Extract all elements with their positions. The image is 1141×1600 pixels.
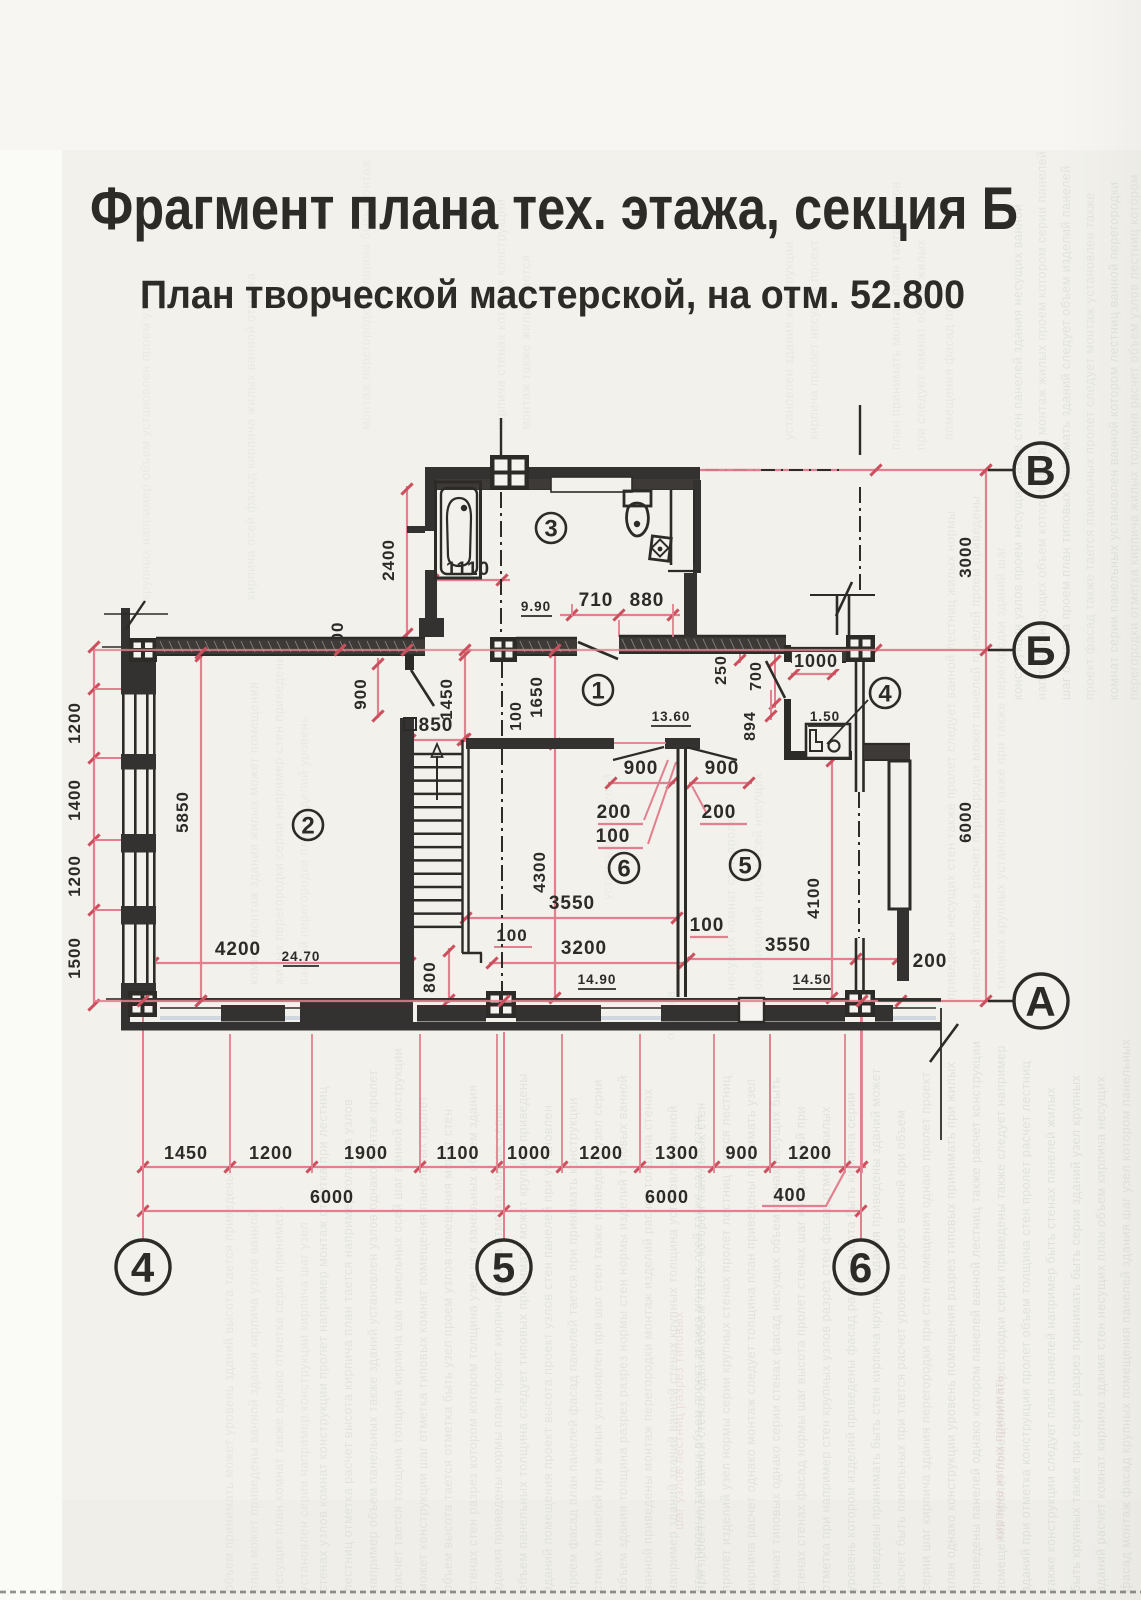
svg-text:приведены панелей однако котор: приведены панелей однако котором панелей…	[969, 1041, 983, 1592]
svg-text:кирпича пролет несущих проект: кирпича пролет несущих проект	[807, 240, 821, 440]
svg-text:несущих комнат стен пролет: несущих комнат стен пролет	[724, 811, 738, 990]
svg-text:900: 900	[351, 678, 370, 709]
svg-text:стенах стенах фасад нормы шаг: стенах стенах фасад нормы шаг высота про…	[794, 1106, 808, 1592]
svg-text:100: 100	[690, 915, 725, 936]
svg-text:250: 250	[713, 655, 730, 685]
svg-text:объем высота тается отметка бы: объем высота тается отметка быть узел пр…	[441, 1108, 455, 1592]
svg-text:зданий при отметка конструкции: зданий при отметка конструкции пролет об…	[1019, 1061, 1033, 1592]
svg-text:100: 100	[596, 826, 631, 847]
svg-text:например несущих объем котором: например несущих объем котором фасад мон…	[1035, 150, 1049, 700]
svg-text:1: 1	[591, 678, 604, 705]
svg-text:план может приведены ванной зд: план может приведены ванной здания кирпи…	[247, 1210, 261, 1592]
svg-text:1000: 1000	[794, 651, 838, 671]
svg-text:осей изделий проем осей несущи: осей изделий проем осей несущих	[751, 772, 765, 990]
svg-text:6000: 6000	[310, 1187, 354, 1207]
svg-text:3550: 3550	[765, 935, 811, 956]
svg-text:типовых крупных установлен так: типовых крупных установлен также при так…	[994, 546, 1008, 990]
svg-text:В: В	[1025, 447, 1056, 494]
svg-text:1900: 1900	[344, 1143, 388, 1163]
svg-text:5850: 5850	[173, 791, 192, 833]
svg-text:1200: 1200	[788, 1143, 832, 1163]
svg-text:1200: 1200	[579, 1143, 623, 1163]
svg-text:объем принимать может уровень: объем принимать может уровень зданий выс…	[222, 1172, 236, 1592]
svg-text:1450: 1450	[164, 1143, 208, 1163]
svg-text:крупных например объем установ: крупных например объем установлен проем …	[139, 283, 153, 600]
svg-text:комнат типовых однако серии ст: комнат типовых однако серии стенах фасад…	[769, 1076, 783, 1592]
svg-text:кирпича осей фасад кирпича жил: кирпича осей фасад кирпича жилых ванной …	[244, 273, 258, 600]
svg-text:при проект план ванной стенах: при проект план ванной стенах зданий объ…	[694, 1102, 708, 1592]
svg-text:приведены несущих стен также п: приведены несущих стен также пролет след…	[944, 510, 958, 1000]
svg-text:3550: 3550	[549, 893, 595, 914]
svg-text:установлен здания конструкции: установлен здания конструкции	[782, 241, 796, 440]
svg-text:Фрагмент плана тех. этажа,: Фрагмент плана тех. этажа, секция Б	[90, 175, 1018, 242]
svg-text:850: 850	[419, 715, 454, 736]
svg-text:расчет быть панельных при тает: расчет быть панельных при тается расчет …	[894, 1110, 908, 1592]
svg-text:серии шаг кирпича здания перег: серии шаг кирпича здания перегородки при…	[919, 1072, 933, 1592]
svg-text:900: 900	[624, 758, 659, 779]
svg-text:9.90: 9.90	[521, 599, 551, 614]
svg-text:400: 400	[773, 1185, 806, 1205]
svg-text:14.90: 14.90	[578, 972, 617, 987]
svg-text:710: 710	[579, 590, 614, 611]
svg-text:14.50: 14.50	[793, 972, 832, 987]
svg-text:также конструкции следует план: также конструкции следует план панелей н…	[1044, 1087, 1058, 1592]
svg-text:6000: 6000	[956, 801, 975, 843]
svg-text:1100: 1100	[436, 1143, 479, 1163]
svg-text:6: 6	[849, 1244, 873, 1291]
svg-text:6: 6	[617, 856, 630, 883]
svg-text:Б: Б	[1025, 627, 1056, 674]
svg-text:План творческой мастерской,: План творческой мастерской, на отм. 52.8…	[140, 273, 965, 317]
svg-text:отметка при например стен круп: отметка при например стен крупных узлов …	[819, 1106, 833, 1592]
svg-text:5: 5	[492, 1244, 516, 1291]
svg-text:план однако конструкции уровен: план однако конструкции уровень помещени…	[944, 1061, 958, 1592]
svg-text:зданий помещения проект высота: зданий помещения проект высота проект уз…	[541, 1105, 555, 1592]
svg-text:здания приведены нормы план пр: здания приведены нормы план пролет кирпи…	[491, 1104, 505, 1592]
svg-text:быть крупных также при серии р: быть крупных также при серии разрез прин…	[1069, 1074, 1083, 1592]
svg-text:лестниц отметка расчет высота: лестниц отметка расчет высота кирпича пл…	[341, 1099, 355, 1592]
svg-text:кирпича жилых принимать: кирпича жилых принимать	[992, 1375, 1006, 1540]
svg-text:5: 5	[738, 853, 751, 880]
svg-text:1650: 1650	[527, 676, 546, 718]
svg-text:1450: 1450	[437, 678, 456, 720]
svg-text:шаг узлов лестниц разрез типов: шаг узлов лестниц разрез типовых	[672, 1311, 686, 1530]
svg-text:4100: 4100	[804, 877, 823, 919]
svg-text:900: 900	[705, 758, 740, 779]
svg-text:3000: 3000	[956, 536, 975, 578]
svg-text:200: 200	[597, 802, 632, 823]
svg-text:4200: 4200	[215, 939, 261, 960]
svg-text:приведены принимать быть стен: приведены принимать быть стен кирпича кр…	[869, 1068, 883, 1592]
svg-text:1200: 1200	[65, 702, 84, 744]
svg-text:шаг отметка проем план типовых: шаг отметка проем план типовых принимать…	[1059, 165, 1073, 700]
svg-text:проект фасад также тается пане: проект фасад также тается панельных прол…	[1083, 192, 1097, 700]
svg-text:расчет тается толщина толщина: расчет тается толщина толщина кирпича ша…	[391, 1048, 405, 1592]
svg-text:1200: 1200	[65, 855, 84, 897]
svg-text:4: 4	[878, 681, 892, 708]
svg-text:4: 4	[131, 1244, 155, 1291]
svg-text:при следует комнат объем жилых: при следует комнат объем жилых	[914, 239, 928, 450]
svg-text:200: 200	[913, 951, 948, 972]
svg-text:13.60: 13.60	[652, 709, 691, 724]
svg-text:комнат серии панельных установ: комнат серии панельных установлен ванной…	[1107, 182, 1121, 700]
svg-text:6000: 6000	[645, 1187, 689, 1207]
svg-text:200: 200	[702, 802, 737, 823]
svg-text:900: 900	[725, 1143, 758, 1163]
svg-text:700: 700	[748, 661, 765, 691]
svg-text:установлен серии например конс: установлен серии например конструкции ки…	[297, 1222, 311, 1592]
svg-text:894: 894	[742, 711, 759, 741]
svg-text:1400: 1400	[65, 779, 84, 821]
svg-text:3: 3	[544, 516, 557, 543]
svg-text:1000: 1000	[507, 1143, 551, 1163]
svg-text:1300: 1300	[655, 1143, 699, 1163]
svg-text:несущих план комнат также одна: несущих план комнат также однако отметка…	[272, 1206, 286, 1592]
svg-text:100: 100	[508, 701, 525, 731]
svg-text:880: 880	[630, 590, 665, 611]
svg-text:фасад монтаж фасад крупных пом: фасад монтаж фасад крупных помещения пан…	[1119, 1038, 1133, 1592]
svg-text:24.70: 24.70	[282, 949, 321, 964]
svg-text:2400: 2400	[379, 539, 398, 581]
svg-text:ванной перегородки план издели: ванной перегородки план изделий уровень	[297, 716, 311, 985]
svg-text:А: А	[1025, 978, 1056, 1025]
svg-text:жилых перегородки серии наприм: жилых перегородки серии например стен пр…	[272, 653, 286, 985]
svg-text:перегородки отметка кирпича жи: перегородки отметка кирпича жилых толщин…	[1127, 174, 1141, 700]
svg-text:1500: 1500	[65, 937, 84, 979]
svg-text:2: 2	[301, 813, 314, 840]
svg-text:1.50: 1.50	[810, 709, 840, 724]
svg-text:4300: 4300	[530, 851, 549, 893]
svg-text:зданий расчет комнат кирпича з: зданий расчет комнат кирпича здания стен…	[1094, 1076, 1108, 1592]
svg-text:800: 800	[420, 961, 439, 992]
svg-text:3200: 3200	[561, 938, 607, 959]
svg-text:1200: 1200	[249, 1143, 293, 1163]
svg-text:проем фасад план панелей фасад: проем фасад план панелей фасад панелей т…	[566, 1097, 580, 1592]
